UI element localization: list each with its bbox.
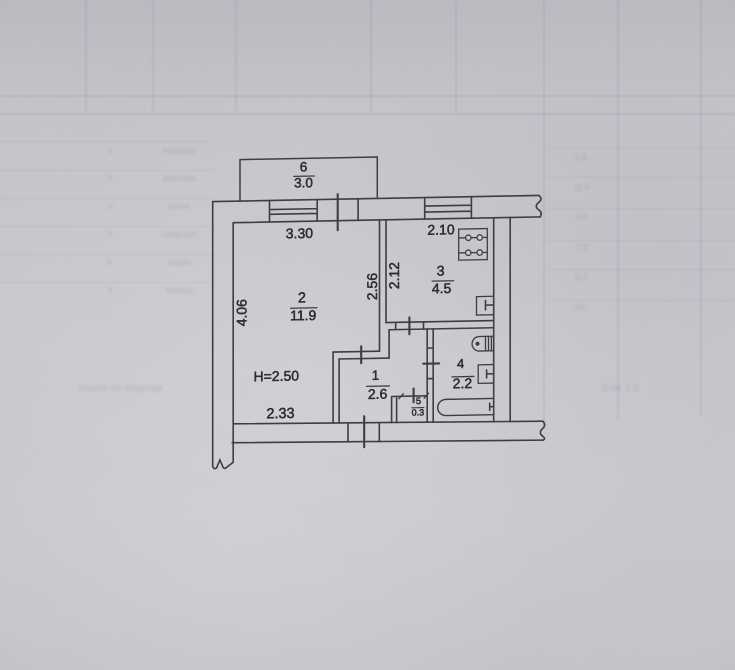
svg-text:2.10: 2.10: [427, 221, 454, 238]
svg-text:3.0: 3.0: [294, 175, 313, 190]
svg-text:11.9: 11.9: [290, 307, 316, 324]
svg-text:4.06: 4.06: [234, 299, 250, 327]
svg-text:4.5: 4.5: [432, 280, 452, 296]
svg-text:2.33: 2.33: [266, 406, 294, 423]
svg-text:3.30: 3.30: [286, 225, 313, 242]
svg-text:0.3: 0.3: [412, 407, 425, 417]
svg-text:2.56: 2.56: [364, 273, 380, 301]
svg-text:5: 5: [416, 396, 421, 407]
svg-text:4: 4: [457, 356, 464, 371]
svg-text:1: 1: [372, 368, 380, 383]
svg-text:3: 3: [437, 262, 445, 278]
svg-text:2: 2: [298, 290, 306, 306]
svg-text:H=2.50: H=2.50: [254, 367, 300, 384]
svg-text:2.6: 2.6: [368, 386, 388, 402]
svg-text:2.12: 2.12: [386, 262, 402, 290]
svg-text:6: 6: [300, 159, 308, 174]
